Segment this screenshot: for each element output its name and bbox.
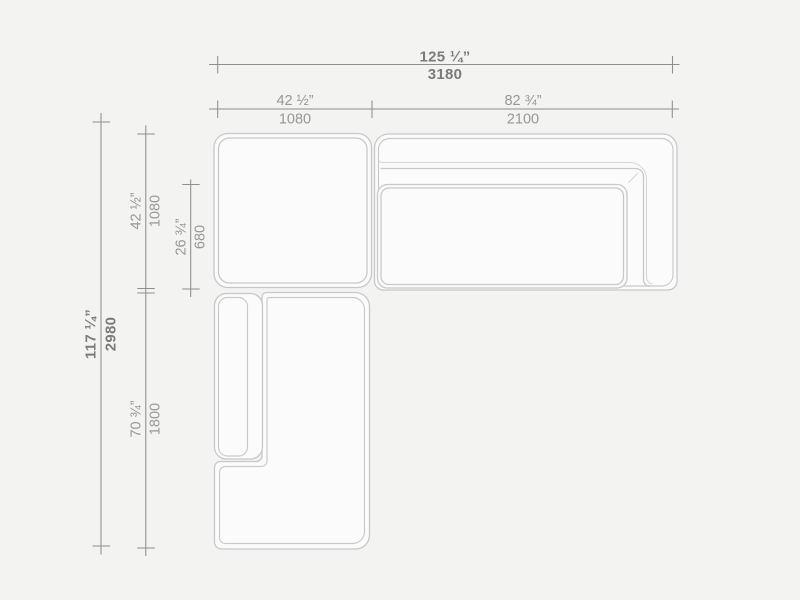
svg-text:125 ¼”: 125 ¼” [419, 49, 470, 66]
svg-text:1080: 1080 [279, 112, 311, 128]
svg-text:1080: 1080 [147, 195, 163, 227]
svg-text:1800: 1800 [147, 403, 163, 435]
svg-text:2100: 2100 [507, 112, 539, 128]
svg-text:680: 680 [192, 225, 208, 249]
svg-text:2980: 2980 [102, 317, 119, 352]
svg-text:117 ¼”: 117 ¼” [82, 309, 99, 359]
svg-text:42 ½”: 42 ½” [276, 93, 313, 109]
svg-text:26 ¾”: 26 ¾” [173, 218, 189, 255]
svg-text:70 ¾”: 70 ¾” [128, 400, 144, 437]
svg-text:42 ½”: 42 ½” [128, 192, 144, 229]
svg-text:3180: 3180 [428, 66, 463, 83]
svg-text:82 ¾”: 82 ¾” [504, 93, 541, 109]
